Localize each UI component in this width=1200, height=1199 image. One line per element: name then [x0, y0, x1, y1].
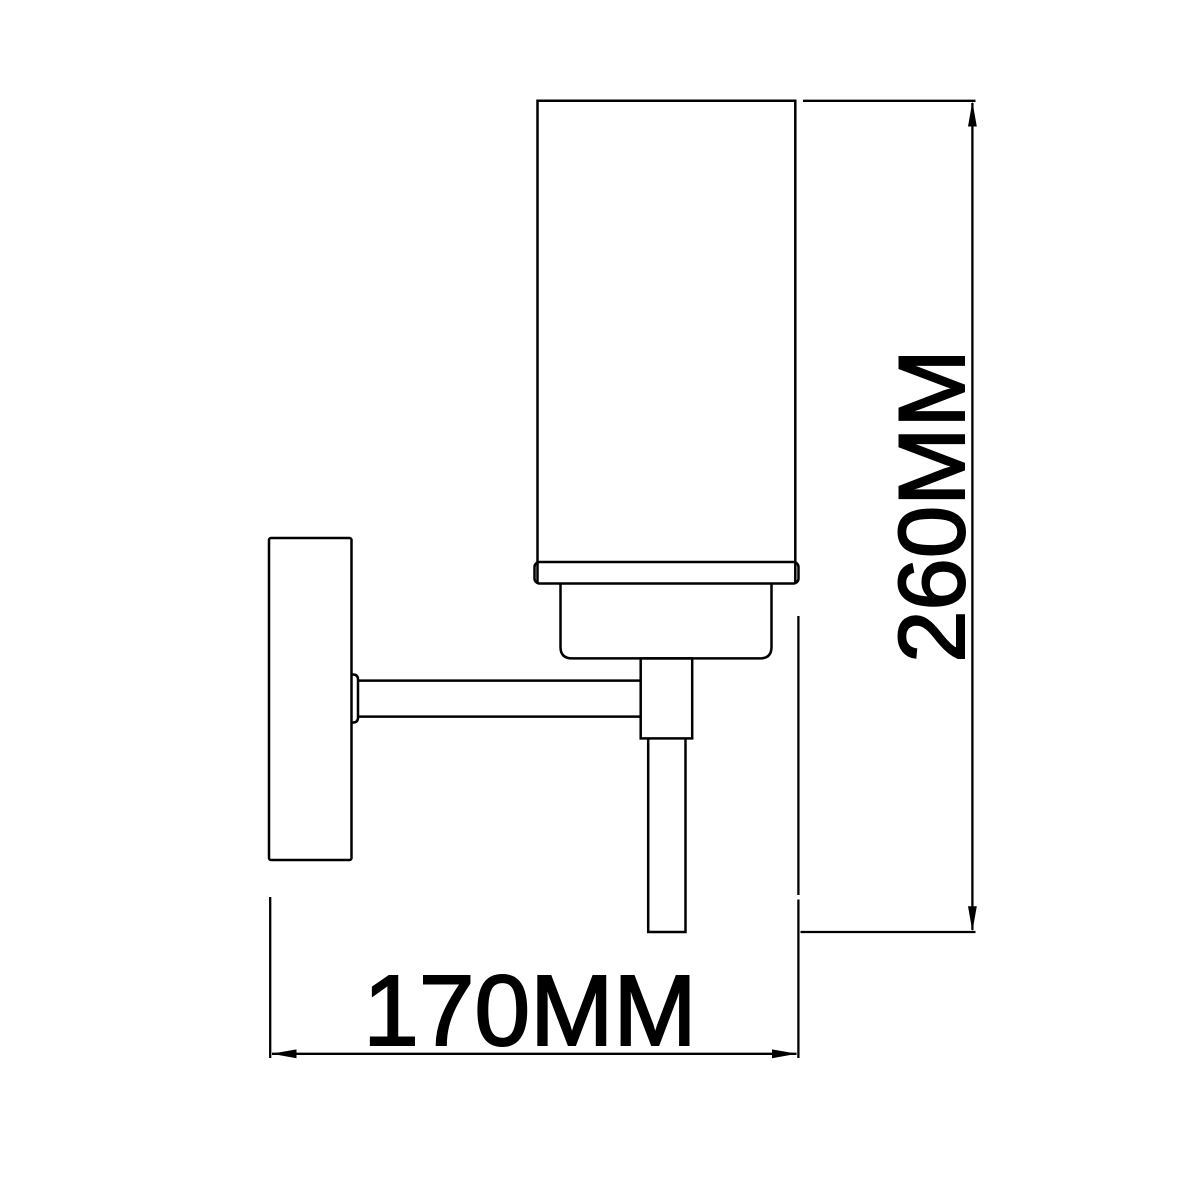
svg-text:260MM: 260MM [879, 349, 984, 662]
svg-text:170MM: 170MM [363, 955, 696, 1067]
